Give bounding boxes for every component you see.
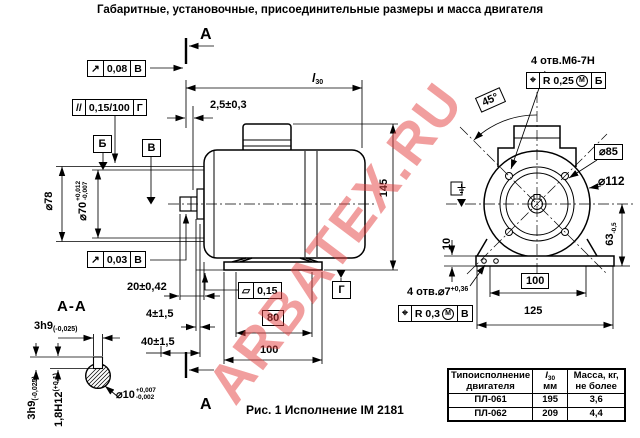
datum-flag-b: Б [93,135,112,153]
drawing-title: Габаритные, установочные, присоединитель… [0,4,640,16]
dim-feet-span: 100 [260,344,278,356]
position-frame-feet: ⌖ R 0,3М В [398,305,473,322]
tolerance-frame-runout-shaft: ↗ 0,03 В [87,251,146,268]
dim-bolt-circle: ⌀85 [594,144,623,160]
label-tap-holes: 4 отв.М6-7Н [531,55,595,67]
dim-shield-dia: ⌀78 [43,181,55,221]
material-condition-icon: М [576,75,588,87]
col-header-mass: Масса, кг, не более [568,369,626,394]
dim-key-depth: 1,8H12(+0,1) [53,363,65,437]
tolerance-frame-flatness: ▱ 0,15 [238,282,282,299]
drawing-sheet: Габаритные, установочные, присоединитель… [0,0,640,438]
parallelism-icon: // [73,100,85,115]
position-icon: ⌖ [399,306,411,321]
dim-height: 145 [378,168,390,208]
dim-flange-dia: ⌀112 [598,175,625,188]
dim-spigot-dia: ⌀70 +0,012-0,007 [76,171,90,231]
figure-caption: Рис. 1 Исполнение IМ 2181 [246,403,404,417]
dim-base-width: 125 [524,305,542,317]
table-header-row: Типоисполнение двигателя l30 мм Масса, к… [448,369,625,394]
motor-data-table: Типоисполнение двигателя l30 мм Масса, к… [447,368,626,422]
flatness-icon: ▱ [239,283,253,298]
col-header-l30: l30 мм [533,369,568,394]
side-view-drawing [180,124,365,270]
front-view-drawing [451,126,614,266]
datum-flag-g: Г [332,281,351,299]
section-mark-top: А [200,26,212,44]
position-icon: ⌖ [527,73,539,88]
dim-key-width-left: 3h9(-0,025) [26,361,40,435]
runout-icon: ↗ [88,252,103,267]
dim-gap: 2,5±0,3 [210,99,247,111]
table-row: ПЛ-062 209 4,4 [448,407,625,421]
dim-key-pos: 4±1,5 [146,308,173,320]
dim-base-thickness: 10 [441,229,453,259]
position-frame-flange: ⌖ R 0,25М Б [526,72,606,89]
dim-hole-span: 100 [521,273,549,289]
label-foot-holes: 4 отв.⌀7+0,36 [407,286,468,298]
dim-key-len: 40±1,5 [141,336,175,348]
col-header-model: Типоисполнение двигателя [448,369,533,394]
dim-holes-span: 80 [262,310,284,326]
dim-shaft-ext: 20±0,42 [127,281,167,293]
ground-terminal-icon [451,182,466,207]
dim-key-width-top: 3h9(-0,025) [34,320,77,334]
tolerance-frame-parallelism: // 0,15/100 Г [72,99,147,116]
dim-l30: l30 [312,72,323,87]
section-mark-bottom: А [200,396,212,414]
runout-icon: ↗ [88,61,103,76]
tolerance-frame-runout-top: ↗ 0,08 В [87,60,146,77]
dim-axis-height: 63-0,5 [604,204,618,264]
datum-flag-v: В [142,139,161,157]
section-title: А-А [57,299,87,316]
table-row: ПЛ-061 195 3,6 [448,394,625,407]
material-condition-icon: М [442,308,454,320]
dim-shaft-dia: ⌀10 +0,007-0,002 [116,388,156,402]
